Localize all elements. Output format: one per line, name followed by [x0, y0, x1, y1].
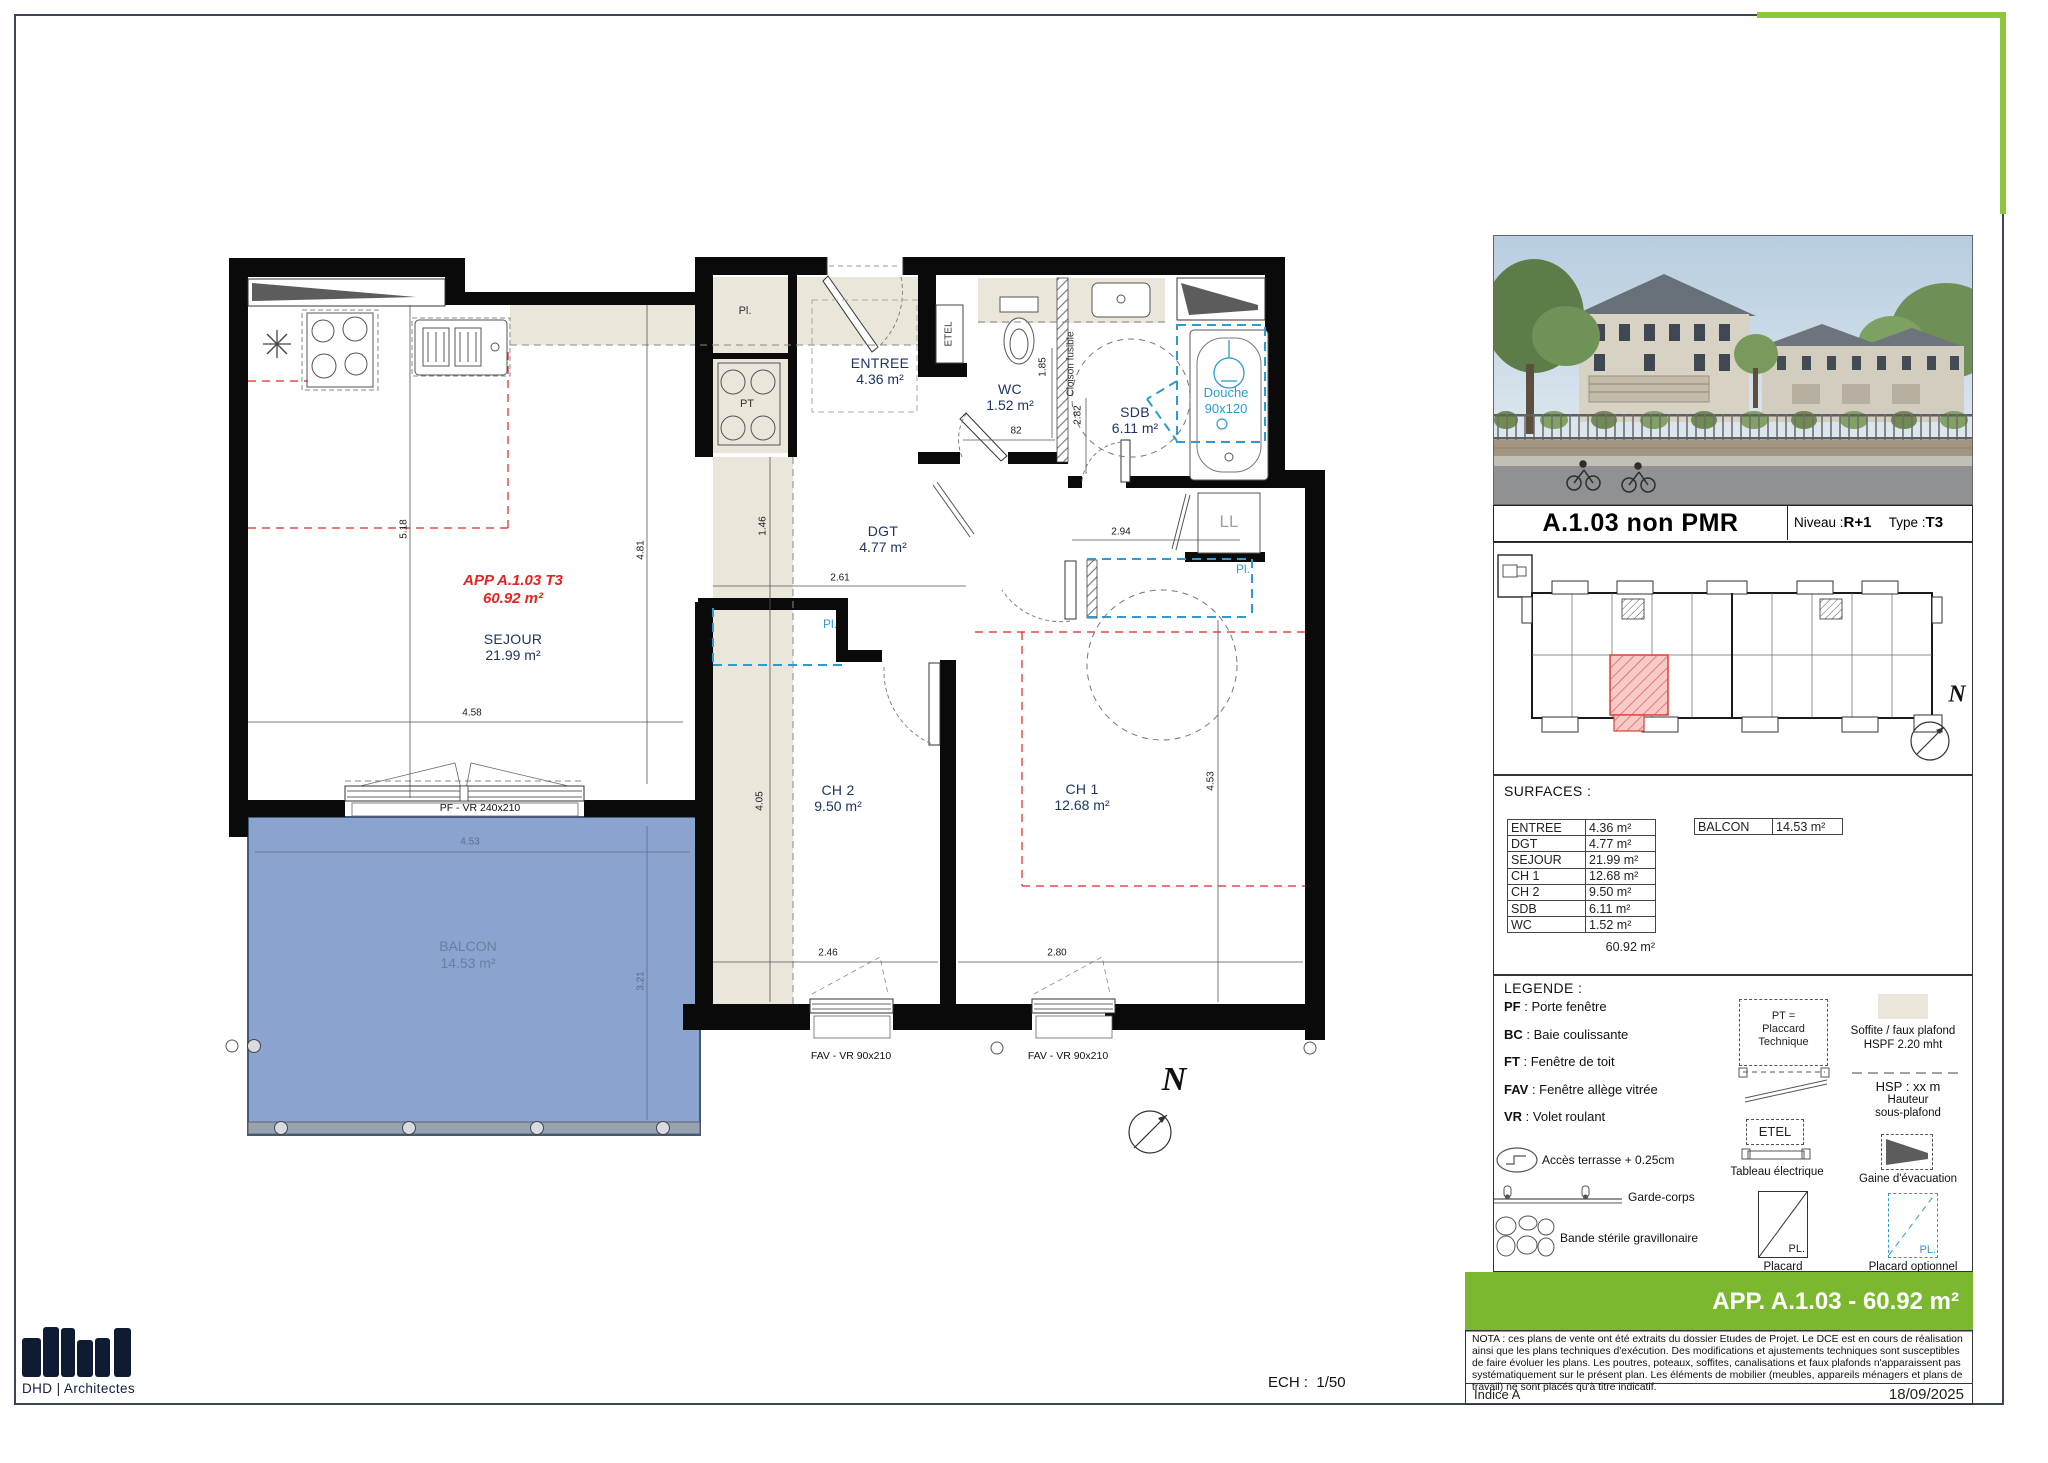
plan-sheet: APP A.1.03 T360.92 m² SEJOUR21.99 m² ENT… [0, 0, 2048, 1463]
type-label: Type : [1889, 515, 1926, 530]
dim-label: 4.81 [636, 540, 647, 559]
revision-row: Indice A 18/09/2025 [1465, 1383, 1973, 1405]
dhd-logo-icon [22, 1322, 137, 1378]
soffite-label2: HSPF 2.20 mht [1864, 1039, 1943, 1051]
acces-terrasse-icon [1496, 1146, 1538, 1174]
photo-box [1493, 235, 1973, 505]
placard-opt-pl-label: PL. [1919, 1244, 1936, 1256]
balcony [248, 817, 701, 1135]
legend-abbreviation: FAV : Fenêtre allège vitrée [1504, 1082, 1658, 1110]
legend-abbreviation: PF : Porte fenêtre [1504, 999, 1658, 1027]
dim-label: 1.85 [1038, 357, 1049, 376]
pt-legend-box: PT = Placcard Technique [1739, 999, 1828, 1066]
toilet-icon [1000, 297, 1038, 312]
surfaces-table: ENTREE4.36 m²DGT4.77 m²SEJOUR21.99 m²CH … [1507, 819, 1656, 933]
dim-label: 4.05 [755, 791, 766, 810]
dim-label: 4.53 [1206, 771, 1217, 790]
garde-corps-icon [1494, 1182, 1624, 1208]
dim-label: 4.53 [460, 837, 479, 848]
hsp-line-icon [1852, 1068, 1962, 1078]
legend-abbreviations: PF : Porte fenêtreBC : Baie coulissanteF… [1504, 999, 1658, 1137]
niveau-value: R+1 [1844, 514, 1872, 531]
placard-optionnel-ch1-label: Pl. [1236, 562, 1250, 576]
room-label-wc: WC1.52 m² [986, 381, 1033, 413]
etel-bar-icon [1740, 1147, 1812, 1163]
balcon-table: BALCON 14.53 m² [1694, 818, 1843, 835]
wc-door-leaf [960, 413, 1007, 461]
room-label-balcon: BALCON14.53 m² [439, 938, 497, 972]
room-label-dgt: DGT4.77 m² [859, 523, 906, 555]
table-row: CH 112.68 m² [1508, 868, 1656, 884]
sdb-door-leaf [1121, 440, 1130, 482]
placard-legend-box: PL. [1758, 1191, 1808, 1258]
architect-logo: DHD | Architectes [22, 1322, 137, 1396]
indice-label: Indice A [1474, 1387, 1520, 1402]
pt-door-icon [1737, 1066, 1832, 1108]
north-letter-panel: N [1948, 682, 1965, 709]
ch2-door-leaf [929, 663, 940, 745]
room-label-sdb: SDB6.11 m² [1112, 404, 1158, 436]
apartment-title: A.1.03 non PMR [1494, 506, 1788, 540]
scale-label: ECH : 1/50 [1268, 1374, 1346, 1391]
etel-label: ETEL [944, 321, 955, 346]
window-fav-ch1 [1032, 999, 1115, 1013]
surfaces-box: SURFACES : ENTREE4.36 m²DGT4.77 m²SEJOUR… [1493, 775, 1973, 975]
placard-label: Pl. [739, 305, 752, 317]
table-row: WC1.52 m² [1508, 917, 1656, 933]
kitchen-fixtures [263, 310, 510, 390]
hatched-wall-stub [1087, 560, 1097, 618]
nota-box: NOTA : ces plans de vente ont été extrai… [1465, 1330, 1973, 1384]
dim-label: 5.18 [399, 519, 410, 538]
legend-abbreviation: VR : Volet roulant [1504, 1109, 1658, 1137]
apartment-ref-label: APP A.1.03 T360.92 m² [463, 572, 563, 608]
architect-logo-text: DHD | Architectes [22, 1381, 137, 1396]
placard-technique-label: PT [740, 398, 754, 410]
placard-optionnel-legend-box: PL. [1888, 1193, 1938, 1258]
etel-legend-box: ETEL [1746, 1119, 1804, 1145]
table-row: ENTREE4.36 m² [1508, 820, 1656, 836]
window-label-fav-ch1: FAV - VR 90x210 [1028, 1050, 1108, 1062]
soffite-label: Soffite / faux plafond [1851, 1025, 1956, 1037]
type-value: T3 [1926, 514, 1944, 531]
room-label-entree: ENTREE4.36 m² [851, 355, 910, 387]
dim-label: 3.21 [636, 971, 647, 990]
gaine-label: Gaine d'évacuation [1859, 1173, 1957, 1185]
placard-optionnel-ch2-label: Pl. [823, 617, 837, 631]
locator-box: N [1493, 542, 1973, 775]
legend-abbreviation: FT : Fenêtre de toit [1504, 1054, 1658, 1082]
dim-label: 2.46 [818, 948, 837, 959]
washbasin-icon [1092, 283, 1150, 317]
surfaces-total: 60.92 m² [1585, 940, 1655, 954]
hsp-label3: sous-plafond [1875, 1107, 1941, 1119]
dim-label: 82 [1010, 426, 1021, 437]
dim-label: 2.61 [830, 573, 849, 584]
bande-sterile-label: Bande stérile gravillonaire [1560, 1231, 1698, 1245]
legend-abbreviation: BC : Baie coulissante [1504, 1027, 1658, 1055]
garde-corps-label: Garde-corps [1628, 1190, 1695, 1204]
surfaces-table-body: ENTREE4.36 m²DGT4.77 m²SEJOUR21.99 m²CH … [1508, 820, 1656, 933]
acces-terrasse-label: Accès terrasse + 0.25cm [1542, 1153, 1674, 1167]
placard-pl-label: PL. [1788, 1243, 1805, 1255]
dim-label: 2.82 [1073, 405, 1084, 424]
fridge-snowflake-icon [263, 330, 291, 358]
soffite-swatch [1878, 994, 1928, 1019]
dim-label: 2.94 [1111, 527, 1130, 538]
title-meta: Niveau :R+1 Type :T3 [1794, 506, 1943, 540]
scale-value: 1/50 [1316, 1374, 1345, 1391]
apartment-banner: APP. A.1.03 - 60.92 m² [1465, 1272, 1973, 1332]
room-label-ch1: CH 112.68 m² [1054, 781, 1109, 813]
building-locator-plan [1494, 543, 1972, 774]
window-label-fav-ch2: FAV - VR 90x210 [811, 1050, 891, 1062]
pmr-circle-sdb [1072, 339, 1190, 457]
title-block: A.1.03 non PMR Niveau :R+1 Type :T3 [1493, 505, 1973, 542]
window-label-pf: PF - VR 240x210 [440, 802, 521, 814]
douche-label: Douche90x120 [1204, 385, 1249, 417]
north-letter: N [1162, 1061, 1187, 1099]
window-fav-ch2 [810, 999, 893, 1013]
table-row: BALCON 14.53 m² [1695, 819, 1843, 835]
gaine-legend-box [1881, 1134, 1933, 1170]
table-row: DGT4.77 m² [1508, 836, 1656, 852]
room-label-sejour: SEJOUR21.99 m² [484, 631, 543, 663]
north-compass-icon [1129, 1111, 1171, 1153]
balcon-value: 14.53 m² [1773, 819, 1843, 835]
legend-box: LEGENDE : PF : Porte fenêtreBC : Baie co… [1493, 975, 1973, 1272]
table-row: CH 29.50 m² [1508, 884, 1656, 900]
tableau-electrique-label: Tableau électrique [1730, 1166, 1823, 1178]
pmr-circle-ch1 [1087, 590, 1237, 740]
ch1-door-leaf [1065, 561, 1076, 619]
residence-render-photo [1494, 236, 1972, 504]
dim-label: 4.58 [462, 708, 481, 719]
cloison-fusible-label: Cloison fusible [1066, 331, 1077, 396]
hsp-label: HSP : xx m [1876, 1079, 1941, 1094]
hsp-label2: Hauteur [1888, 1094, 1929, 1106]
room-label-ch2: CH 29.50 m² [814, 782, 861, 814]
table-row: SDB6.11 m² [1508, 900, 1656, 916]
surfaces-title: SURFACES : [1504, 783, 1591, 799]
table-row: SEJOUR21.99 m² [1508, 852, 1656, 868]
dim-label: 1.46 [758, 516, 769, 535]
legend-title: LEGENDE : [1504, 980, 1582, 996]
balcon-name: BALCON [1695, 819, 1773, 835]
dim-label: 2.80 [1047, 948, 1066, 959]
date-label: 18/09/2025 [1889, 1386, 1964, 1403]
lave-linge-label: LL [1220, 512, 1239, 532]
niveau-label: Niveau : [1794, 515, 1844, 530]
bande-sterile-icon [1494, 1214, 1556, 1262]
